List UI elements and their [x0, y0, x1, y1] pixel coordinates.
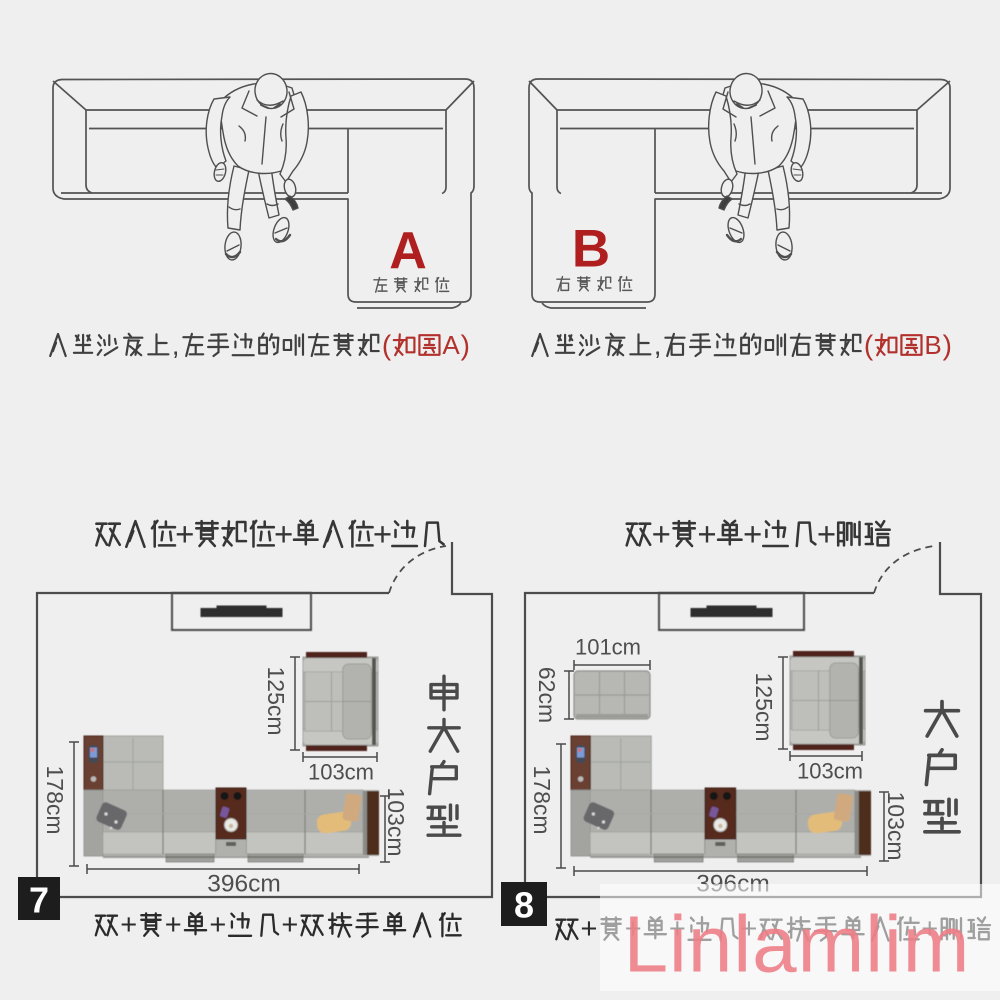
svg-text:+: + [175, 516, 194, 553]
svg-text:103cm: 103cm [883, 791, 909, 860]
svg-text:+: + [817, 516, 836, 553]
svg-text:+: + [652, 516, 671, 553]
svg-text:178cm: 178cm [529, 765, 555, 834]
svg-text:A: A [442, 330, 460, 360]
svg-text:125cm: 125cm [751, 672, 777, 741]
svg-text:8: 8 [514, 885, 534, 926]
svg-text:+: + [165, 909, 182, 941]
svg-text:B: B [924, 330, 941, 360]
svg-text:A: A [389, 222, 427, 280]
svg-text:Linlamlim: Linlamlim [624, 900, 971, 989]
svg-text:): ) [943, 330, 952, 361]
svg-text:178cm: 178cm [42, 765, 68, 834]
svg-text:(: ( [382, 330, 392, 361]
svg-text:+: + [697, 516, 716, 553]
svg-text:125cm: 125cm [263, 666, 289, 735]
svg-text:+: + [373, 516, 392, 553]
svg-text:+: + [581, 913, 598, 945]
svg-text:,: , [654, 330, 662, 361]
svg-text:+: + [120, 909, 137, 941]
svg-text:103cm: 103cm [383, 787, 409, 856]
svg-text:101cm: 101cm [575, 635, 641, 660]
svg-text:62cm: 62cm [534, 667, 560, 723]
svg-text:+: + [209, 909, 226, 941]
svg-text:7: 7 [29, 880, 49, 921]
svg-text:B: B [572, 220, 610, 279]
svg-text:103cm: 103cm [797, 759, 863, 784]
svg-text:+: + [281, 909, 298, 941]
svg-text:(: ( [864, 330, 874, 361]
svg-text:,: , [172, 330, 180, 361]
svg-text:+: + [274, 516, 293, 553]
svg-text:): ) [461, 330, 470, 361]
svg-text:+: + [743, 516, 762, 553]
svg-text:103cm: 103cm [308, 760, 374, 785]
svg-text:396cm: 396cm [207, 871, 281, 898]
